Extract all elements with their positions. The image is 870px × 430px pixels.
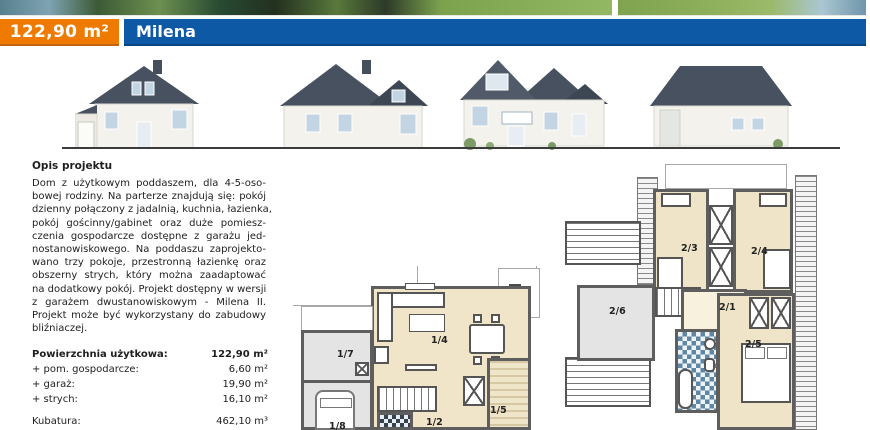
lake-and-garden-photo xyxy=(0,0,612,16)
brochure-page: 122,90 m² Milena xyxy=(0,0,870,430)
window xyxy=(405,283,435,290)
boiler xyxy=(355,362,369,376)
house-elevation-side-right-drawing xyxy=(650,60,792,150)
description-line: na dodatkowy pokój. Projekt dostępny w w… xyxy=(32,283,266,296)
description-text: Dom z użytkowym poddaszem, dla 4-5-oso-b… xyxy=(32,177,266,335)
room-label: 1/2 xyxy=(426,417,443,428)
elevation-ground-line xyxy=(62,147,840,149)
house-elevation-back-drawing xyxy=(460,56,608,150)
spec-value: 122,90 m² xyxy=(211,347,268,362)
spec-row: + strych: 16,10 m² xyxy=(32,392,268,407)
description-line: Dom z użytkowym poddaszem, dla 4-5-oso- xyxy=(32,177,266,190)
room-label: 1/4 xyxy=(431,335,448,346)
desk xyxy=(661,193,691,207)
attic-floor-plan: 2/3 2/4 2/1 2/5 2/6 xyxy=(563,163,825,430)
description-line: z garażem dwustanowiskowym - Milena II. xyxy=(32,296,266,309)
description-line: wano trzy pokoje, przestronną łazienkę o… xyxy=(32,256,266,269)
wardrobe xyxy=(709,205,733,245)
spec-row: + garaż: 19,90 m² xyxy=(32,377,268,392)
project-description: Opis projektu Dom z użytkowym poddaszem,… xyxy=(32,160,266,335)
ground-floor-plan: 1/7 1/4 1/2 1/5 1/8 xyxy=(293,266,545,430)
room-label: 1/7 xyxy=(337,349,354,360)
house-elevation-front-drawing xyxy=(75,58,213,150)
dining-table xyxy=(469,324,505,354)
room-label: 2/3 xyxy=(681,243,698,254)
room-label: 2/1 xyxy=(719,302,736,313)
room-label: 2/5 xyxy=(745,339,762,350)
wardrobe xyxy=(749,297,769,329)
room-label: 1/8 xyxy=(329,421,346,430)
chair xyxy=(491,314,500,323)
bathroom xyxy=(377,412,413,430)
coffee-table xyxy=(409,314,445,332)
chair xyxy=(473,356,482,365)
wardrobe xyxy=(771,297,791,329)
spec-label: Kubatura: xyxy=(32,414,81,429)
roof-over-porch xyxy=(565,221,641,265)
spec-value: 462,10 m³ xyxy=(216,414,268,429)
spec-value: 6,60 m² xyxy=(229,362,268,377)
tv-stand xyxy=(405,364,437,371)
attic-storage xyxy=(577,285,655,361)
sofa xyxy=(377,292,393,342)
description-heading: Opis projektu xyxy=(32,160,266,172)
description-line: nostanowiskowego. Na poddaszu zaprojekto… xyxy=(32,243,266,256)
description-line: obszerny strych, który można zaadaptować xyxy=(32,269,266,282)
area-value: 122,90 m² xyxy=(10,22,109,42)
description-line: pokój gościnny/gabinet oraz duże pomiesz… xyxy=(32,217,266,230)
spec-label: + pom. gospodarcze: xyxy=(32,362,139,377)
staircase xyxy=(377,386,437,412)
bed xyxy=(657,257,683,289)
spec-label: + strych: xyxy=(32,392,78,407)
description-line: bowej rodziny. Na parterze znajdują się:… xyxy=(32,190,266,203)
room-label: 2/6 xyxy=(609,306,626,317)
chair xyxy=(473,314,482,323)
balcony-outline xyxy=(665,164,787,189)
wardrobe xyxy=(463,376,485,406)
toilet xyxy=(704,358,715,372)
project-title-bar: Milena xyxy=(124,19,866,46)
spec-value: 19,90 m² xyxy=(222,377,268,392)
sink xyxy=(704,338,716,350)
description-line: Projekt może być wykorzystany do zabudow… xyxy=(32,309,266,322)
external-stairs xyxy=(565,357,651,407)
porch-outline xyxy=(301,306,373,332)
house-elevation-side-left-drawing xyxy=(278,58,428,150)
area-badge: 122,90 m² xyxy=(0,19,119,46)
project-name: Milena xyxy=(136,22,196,41)
spec-label: + garaż: xyxy=(32,377,75,392)
description-line: czenia gospodarcze dostępne z garażu jed… xyxy=(32,230,266,243)
fireplace xyxy=(374,346,389,364)
sofa xyxy=(389,292,445,308)
garden-lawn-photo xyxy=(618,0,866,16)
spec-label: Powierzchnia użytkowa: xyxy=(32,347,168,362)
wardrobe xyxy=(709,247,733,287)
kitchen xyxy=(487,358,531,430)
spec-row xyxy=(32,407,268,414)
description-line: bliźniaczej. xyxy=(32,322,266,335)
spec-row: Powierzchnia użytkowa: 122,90 m² xyxy=(32,347,268,362)
spec-table: Powierzchnia użytkowa: 122,90 m² + pom. … xyxy=(32,347,268,430)
spec-row: + pom. gospodarcze: 6,60 m² xyxy=(32,362,268,377)
spec-value: 16,10 m² xyxy=(222,392,268,407)
spec-row: Kubatura: 462,10 m³ xyxy=(32,414,268,429)
roof-slope-hatch xyxy=(795,175,817,430)
car-windshield xyxy=(320,398,352,408)
desk xyxy=(759,193,787,207)
room-label: 2/4 xyxy=(751,246,768,257)
description-line: dzienny połączony z jadalnią, kuchnia, ł… xyxy=(32,203,266,216)
bathtub xyxy=(678,369,693,409)
room-label: 1/5 xyxy=(490,405,507,416)
pillow xyxy=(767,347,787,359)
